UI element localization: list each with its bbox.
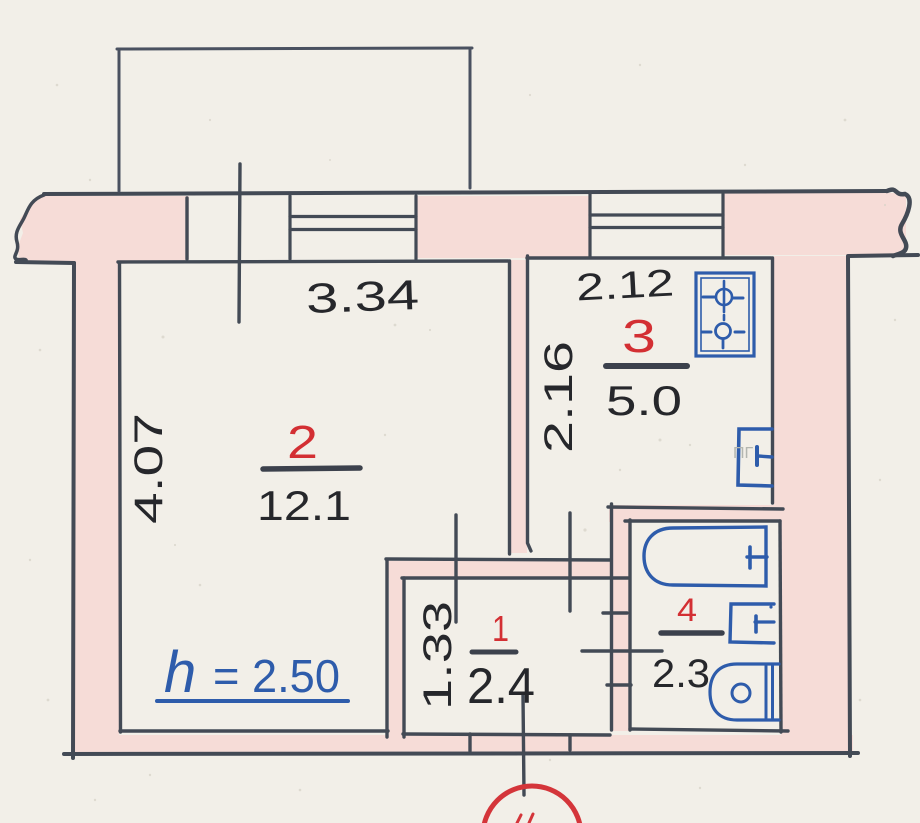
svg-text:h: h: [164, 640, 196, 705]
svg-text:= 2.50: = 2.50: [213, 650, 340, 702]
svg-text:5.0: 5.0: [606, 377, 682, 424]
svg-text:1: 1: [492, 608, 509, 649]
svg-text:4.07: 4.07: [127, 413, 171, 524]
svg-text:3.34: 3.34: [305, 271, 420, 322]
svg-text:2.3: 2.3: [652, 652, 710, 696]
svg-text:2.12: 2.12: [575, 262, 675, 309]
svg-text:2.16: 2.16: [537, 341, 581, 453]
svg-text:2.4: 2.4: [467, 658, 535, 714]
svg-text:12.1: 12.1: [257, 482, 351, 529]
svg-text:3: 3: [622, 310, 656, 362]
svg-text:1.33: 1.33: [416, 601, 460, 710]
svg-text:4: 4: [677, 592, 697, 628]
svg-text:2: 2: [287, 416, 318, 468]
svg-text:ПГ: ПГ: [733, 445, 754, 462]
